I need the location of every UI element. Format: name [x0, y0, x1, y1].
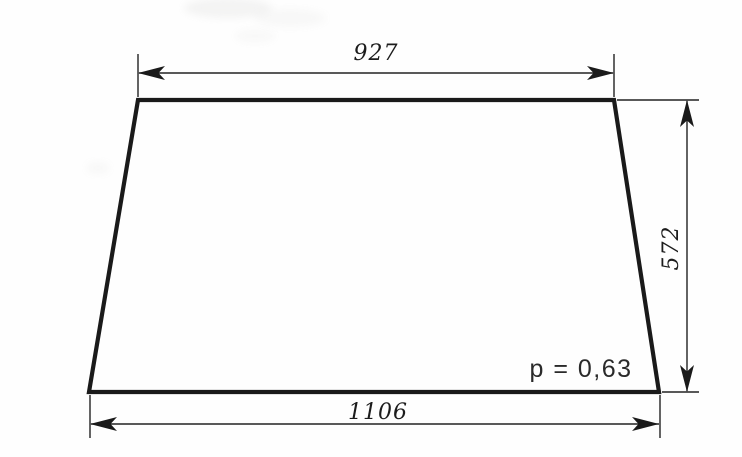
right-dimension: 572 [617, 100, 699, 392]
scan-smudge [86, 162, 110, 174]
scan-smudge [235, 29, 275, 43]
right-dimension-label: 572 [659, 226, 684, 271]
bottom-dimension: 1106 [90, 395, 660, 438]
top-dimension-label: 927 [354, 41, 399, 66]
ratio-annotation-label: p = 0,63 [529, 355, 632, 383]
top-dimension: 927 [138, 41, 614, 97]
scan-smudge [254, 9, 326, 27]
scan-artifacts [86, 0, 326, 174]
trapezoid-outline [89, 100, 659, 392]
scanned-drawing-page: 927 1106 572 p = 0,63 [0, 0, 742, 457]
dimension-drawing: 927 1106 572 p = 0,63 [0, 0, 742, 457]
bottom-dimension-label: 1106 [348, 400, 408, 425]
